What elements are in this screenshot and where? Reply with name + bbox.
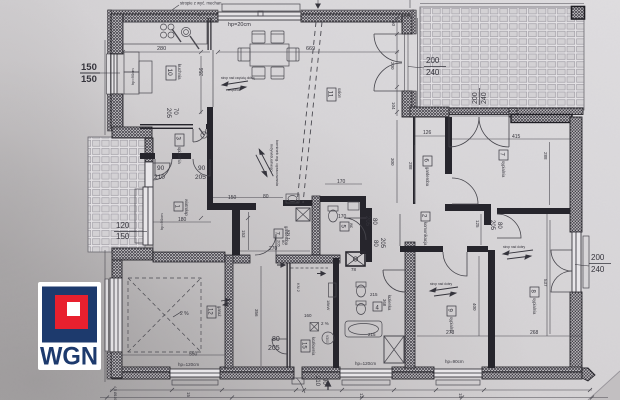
svg-text:200: 200 xyxy=(472,92,479,104)
svg-text:hp=120cm: hp=120cm xyxy=(178,362,199,367)
svg-text:550: 550 xyxy=(189,352,198,358)
svg-text:205: 205 xyxy=(268,345,280,352)
svg-text:200: 200 xyxy=(426,56,440,65)
svg-text:280: 280 xyxy=(157,46,166,52)
svg-text:240: 240 xyxy=(591,265,605,274)
svg-text:270: 270 xyxy=(269,246,278,252)
svg-text:hp=90cm: hp=90cm xyxy=(445,359,464,364)
svg-text:160: 160 xyxy=(304,313,312,318)
svg-text:240: 240 xyxy=(481,92,488,104)
svg-text:strop nad częścią dolną: strop nad częścią dolną xyxy=(221,76,255,80)
svg-text:205: 205 xyxy=(364,216,370,227)
svg-text:300: 300 xyxy=(390,158,395,166)
svg-text:strop nad dobry: strop nad dobry xyxy=(503,245,526,249)
svg-text:hp=20cm: hp=20cm xyxy=(228,22,251,28)
svg-text:210: 210 xyxy=(314,376,320,387)
svg-text:15: 15 xyxy=(458,393,463,399)
svg-text:spiżarnia: spiżarnia xyxy=(177,147,182,164)
svg-text:120: 120 xyxy=(116,221,130,230)
svg-text:12: 12 xyxy=(359,393,364,399)
svg-text:sypialnia: sypialnia xyxy=(501,161,506,178)
svg-text:KN 2: KN 2 xyxy=(296,283,301,293)
svg-text:V300: V300 xyxy=(325,335,329,343)
svg-text:wiatrołap: wiatrołap xyxy=(184,199,189,216)
svg-text:indywidualnego: indywidualnego xyxy=(270,144,275,172)
svg-text:90: 90 xyxy=(157,165,165,172)
svg-text:78: 78 xyxy=(351,267,357,272)
svg-text:15: 15 xyxy=(301,342,307,349)
svg-text:11: 11 xyxy=(327,91,334,98)
svg-text:2 %: 2 % xyxy=(180,311,189,317)
svg-text:200: 200 xyxy=(390,62,395,70)
svg-text:415: 415 xyxy=(512,134,521,140)
svg-text:10: 10 xyxy=(166,69,173,77)
svg-text:150: 150 xyxy=(116,232,130,241)
svg-text:180: 180 xyxy=(178,217,187,223)
svg-text:80: 80 xyxy=(372,240,378,247)
svg-text:126: 126 xyxy=(423,130,432,136)
svg-text:400: 400 xyxy=(472,303,477,311)
svg-text:hp=90cm: hp=90cm xyxy=(130,68,135,85)
svg-text:12: 12 xyxy=(207,308,213,315)
svg-text:80: 80 xyxy=(272,336,280,343)
svg-text:356: 356 xyxy=(199,67,205,76)
svg-text:wc: wc xyxy=(349,223,354,228)
svg-text:205: 205 xyxy=(379,238,385,249)
svg-text:hp=90cm: hp=90cm xyxy=(159,213,164,230)
svg-text:KN 1: KN 1 xyxy=(286,230,291,241)
svg-text:kozłownia: kozłownia xyxy=(311,337,316,356)
svg-text:15: 15 xyxy=(186,392,191,398)
svg-text:kuchnia: kuchnia xyxy=(177,64,182,80)
svg-text:WGN: WGN xyxy=(40,343,98,371)
svg-text:288: 288 xyxy=(408,162,413,170)
svg-text:150: 150 xyxy=(228,195,237,201)
svg-text:wsporów: wsporów xyxy=(228,88,241,92)
svg-text:50: 50 xyxy=(391,21,396,27)
svg-text:70: 70 xyxy=(172,108,178,115)
svg-text:170: 170 xyxy=(337,179,346,185)
svg-text:205: 205 xyxy=(195,174,206,181)
svg-text:268: 268 xyxy=(530,330,539,336)
svg-text:2 %: 2 % xyxy=(321,321,329,326)
svg-text:356: 356 xyxy=(254,309,259,317)
svg-text:537: 537 xyxy=(543,279,548,287)
svg-text:215: 215 xyxy=(368,332,376,337)
svg-text:150: 150 xyxy=(81,74,97,85)
svg-text:80: 80 xyxy=(371,218,377,225)
svg-text:125: 125 xyxy=(475,220,480,228)
svg-text:170: 170 xyxy=(338,214,347,220)
svg-text:hp=120cm: hp=120cm xyxy=(355,361,376,366)
svg-text:18kW: 18kW xyxy=(326,300,331,310)
svg-text:strop nad dobry: strop nad dobry xyxy=(430,282,453,286)
svg-text:669: 669 xyxy=(306,46,315,52)
svg-text:kominek wg. opracowania: kominek wg. opracowania xyxy=(275,140,280,187)
svg-text:288: 288 xyxy=(543,152,548,160)
svg-text:150: 150 xyxy=(81,62,97,73)
svg-text:garaż: garaż xyxy=(217,306,222,316)
svg-text:205: 205 xyxy=(489,220,495,231)
svg-text:90: 90 xyxy=(198,165,206,172)
svg-text:stropie z wyć. mechan.: stropie z wyć. mechan. xyxy=(180,1,223,6)
svg-text:153: 153 xyxy=(241,230,246,238)
svg-text:garderoba: garderoba xyxy=(425,167,430,187)
svg-text:80: 80 xyxy=(263,194,269,200)
svg-text:sypialnia: sypialnia xyxy=(532,298,537,315)
svg-text:sypialnia: sypialnia xyxy=(449,317,454,334)
svg-text:368: 368 xyxy=(382,299,387,307)
svg-text:205: 205 xyxy=(165,108,171,119)
svg-text:4,5 Ø100: 4,5 Ø100 xyxy=(113,386,117,400)
svg-text:210: 210 xyxy=(154,174,165,181)
svg-text:104: 104 xyxy=(391,102,396,110)
svg-text:komunikacja: komunikacja xyxy=(423,222,428,246)
svg-text:215: 215 xyxy=(370,292,378,297)
svg-text:200: 200 xyxy=(591,253,605,262)
svg-text:205: 205 xyxy=(277,240,282,247)
svg-text:salon: salon xyxy=(337,88,342,99)
svg-text:240: 240 xyxy=(426,68,440,77)
svg-text:90: 90 xyxy=(321,378,327,385)
svg-text:80: 80 xyxy=(496,222,502,229)
